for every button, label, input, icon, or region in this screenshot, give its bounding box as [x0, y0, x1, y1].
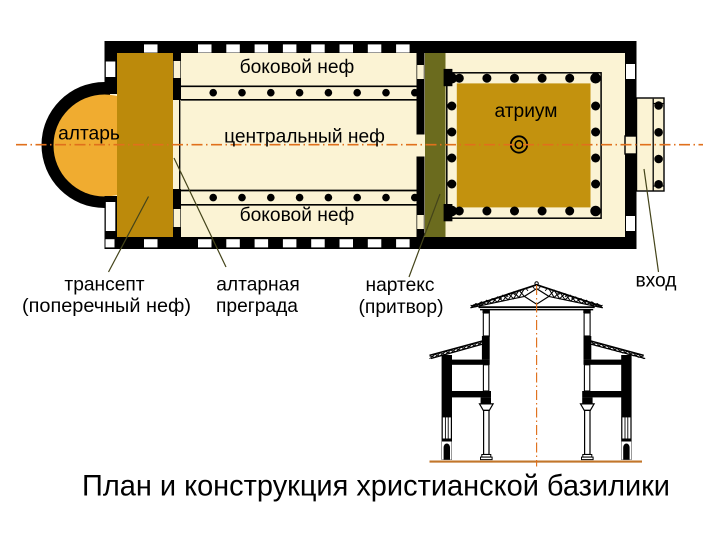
svg-text:атриум: атриум [495, 101, 558, 122]
svg-text:(притвор): (притвор) [359, 297, 444, 318]
svg-text:преграда: преграда [216, 296, 298, 317]
svg-text:трансепт: трансепт [64, 275, 144, 296]
svg-text:вход: вход [635, 271, 676, 292]
svg-text:центральный неф: центральный неф [224, 127, 385, 148]
svg-text:(поперечный неф): (поперечный неф) [22, 296, 191, 317]
svg-text:нартекс: нартекс [366, 275, 435, 296]
svg-text:План и конструкция христианско: План и конструкция христианской базилики [82, 470, 670, 503]
svg-text:алтарь: алтарь [58, 124, 120, 145]
svg-text:боковой неф: боковой неф [240, 205, 355, 226]
svg-text:боковой неф: боковой неф [240, 57, 355, 78]
svg-text:алтарная: алтарная [216, 275, 299, 296]
